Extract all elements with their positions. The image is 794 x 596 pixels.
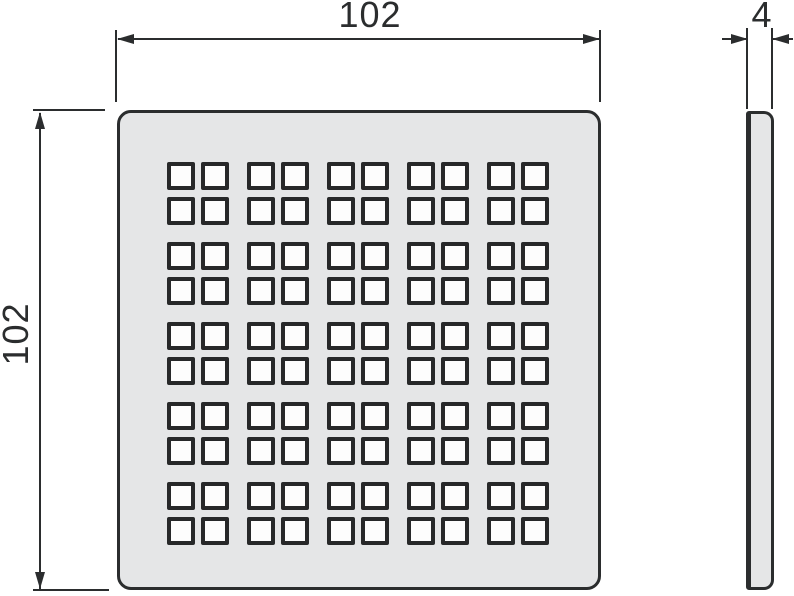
- hole-cluster: [167, 402, 229, 465]
- height-dim-ext-top: [33, 109, 105, 111]
- square-hole: [441, 517, 469, 545]
- square-hole: [201, 357, 229, 385]
- square-hole: [247, 277, 275, 305]
- grate-side-profile: [746, 111, 774, 590]
- square-hole: [441, 322, 469, 350]
- square-hole: [361, 482, 389, 510]
- square-hole: [521, 402, 549, 430]
- square-hole: [167, 357, 195, 385]
- hole-cluster: [487, 402, 549, 465]
- square-hole: [247, 402, 275, 430]
- hole-cluster: [327, 322, 389, 385]
- hole-cluster: [167, 322, 229, 385]
- square-hole: [327, 197, 355, 225]
- square-hole: [487, 517, 515, 545]
- square-hole: [201, 437, 229, 465]
- square-hole: [327, 517, 355, 545]
- hole-cluster: [487, 162, 549, 225]
- square-hole: [201, 197, 229, 225]
- hole-cluster: [487, 242, 549, 305]
- square-hole: [441, 357, 469, 385]
- square-hole: [361, 402, 389, 430]
- square-hole: [407, 357, 435, 385]
- square-hole: [521, 437, 549, 465]
- square-hole: [167, 402, 195, 430]
- square-hole: [281, 402, 309, 430]
- square-hole: [487, 482, 515, 510]
- hole-cluster: [327, 482, 389, 545]
- square-hole: [521, 322, 549, 350]
- hole-grid: [167, 162, 549, 545]
- width-dim-arrow-right-icon: [583, 34, 600, 44]
- height-dim-label: 102: [0, 294, 34, 374]
- square-hole: [521, 517, 549, 545]
- square-hole: [167, 322, 195, 350]
- square-hole: [407, 242, 435, 270]
- square-hole: [281, 517, 309, 545]
- square-hole: [407, 322, 435, 350]
- square-hole: [327, 277, 355, 305]
- square-hole: [441, 402, 469, 430]
- square-hole: [201, 402, 229, 430]
- square-hole: [361, 277, 389, 305]
- square-hole: [327, 357, 355, 385]
- width-dim-label: 102: [238, 0, 502, 33]
- square-hole: [327, 437, 355, 465]
- square-hole: [361, 242, 389, 270]
- square-hole: [281, 357, 309, 385]
- thickness-dim-arrow-right-icon: [731, 34, 748, 44]
- square-hole: [487, 197, 515, 225]
- square-hole: [361, 437, 389, 465]
- hole-cluster: [407, 162, 469, 225]
- square-hole: [247, 437, 275, 465]
- hole-cluster: [247, 242, 309, 305]
- square-hole: [361, 517, 389, 545]
- square-hole: [361, 162, 389, 190]
- square-hole: [407, 162, 435, 190]
- hole-cluster: [407, 402, 469, 465]
- hole-cluster: [487, 482, 549, 545]
- square-hole: [407, 482, 435, 510]
- square-hole: [247, 482, 275, 510]
- width-dim-line: [118, 38, 600, 40]
- square-hole: [407, 402, 435, 430]
- thickness-dim-arrow-left-icon: [772, 34, 789, 44]
- square-hole: [521, 277, 549, 305]
- hole-cluster: [167, 162, 229, 225]
- square-hole: [327, 242, 355, 270]
- hole-cluster: [247, 482, 309, 545]
- square-hole: [281, 322, 309, 350]
- square-hole: [247, 517, 275, 545]
- square-hole: [521, 162, 549, 190]
- square-hole: [327, 482, 355, 510]
- square-hole: [201, 242, 229, 270]
- square-hole: [441, 197, 469, 225]
- hole-cluster: [247, 162, 309, 225]
- square-hole: [247, 322, 275, 350]
- square-hole: [247, 242, 275, 270]
- square-hole: [441, 162, 469, 190]
- square-hole: [281, 437, 309, 465]
- hole-cluster: [327, 162, 389, 225]
- square-hole: [327, 322, 355, 350]
- square-hole: [361, 357, 389, 385]
- grate-front-view: [117, 110, 601, 590]
- hole-cluster: [327, 402, 389, 465]
- square-hole: [361, 197, 389, 225]
- square-hole: [441, 242, 469, 270]
- width-dim-arrow-left-icon: [117, 34, 134, 44]
- square-hole: [441, 482, 469, 510]
- square-hole: [167, 277, 195, 305]
- height-dim-ext-bottom: [33, 589, 109, 591]
- square-hole: [167, 162, 195, 190]
- hole-cluster: [407, 482, 469, 545]
- square-hole: [167, 482, 195, 510]
- square-hole: [167, 517, 195, 545]
- square-hole: [247, 197, 275, 225]
- square-hole: [247, 357, 275, 385]
- height-dim-arrow-up-icon: [35, 112, 45, 129]
- hole-cluster: [487, 322, 549, 385]
- thickness-dim-label: 4: [734, 0, 790, 33]
- hole-cluster: [247, 402, 309, 465]
- square-hole: [487, 357, 515, 385]
- hole-cluster: [407, 322, 469, 385]
- square-hole: [167, 437, 195, 465]
- square-hole: [201, 277, 229, 305]
- square-hole: [521, 197, 549, 225]
- square-hole: [281, 197, 309, 225]
- square-hole: [487, 402, 515, 430]
- square-hole: [521, 482, 549, 510]
- square-hole: [201, 162, 229, 190]
- square-hole: [281, 162, 309, 190]
- square-hole: [407, 517, 435, 545]
- height-dim-line: [39, 113, 41, 589]
- square-hole: [201, 322, 229, 350]
- square-hole: [361, 322, 389, 350]
- square-hole: [247, 162, 275, 190]
- square-hole: [167, 197, 195, 225]
- technical-drawing-canvas: 102 102 4: [0, 0, 794, 596]
- square-hole: [201, 482, 229, 510]
- hole-cluster: [167, 482, 229, 545]
- square-hole: [407, 277, 435, 305]
- hole-cluster: [167, 242, 229, 305]
- square-hole: [441, 437, 469, 465]
- square-hole: [281, 277, 309, 305]
- square-hole: [167, 242, 195, 270]
- square-hole: [327, 402, 355, 430]
- square-hole: [521, 242, 549, 270]
- square-hole: [487, 437, 515, 465]
- square-hole: [487, 162, 515, 190]
- square-hole: [487, 277, 515, 305]
- square-hole: [281, 482, 309, 510]
- height-dim-arrow-down-icon: [35, 572, 45, 589]
- square-hole: [407, 437, 435, 465]
- square-hole: [487, 322, 515, 350]
- hole-cluster: [247, 322, 309, 385]
- square-hole: [521, 357, 549, 385]
- hole-cluster: [327, 242, 389, 305]
- square-hole: [407, 197, 435, 225]
- square-hole: [327, 162, 355, 190]
- square-hole: [281, 242, 309, 270]
- hole-cluster: [407, 242, 469, 305]
- square-hole: [487, 242, 515, 270]
- square-hole: [441, 277, 469, 305]
- square-hole: [201, 517, 229, 545]
